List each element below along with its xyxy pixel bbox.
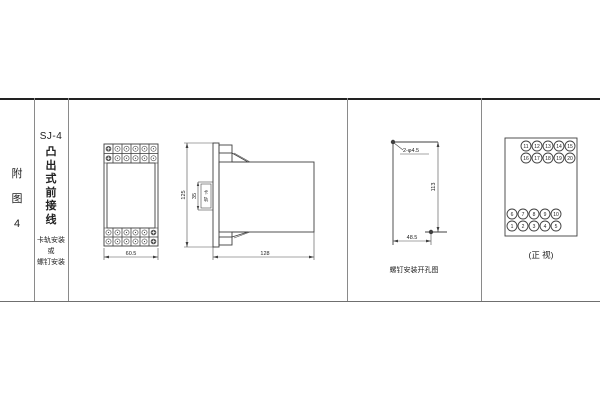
terminal-layout-drawing: 1112131415161718192067891012345 (正 视) [481,125,600,270]
model-label: SJ-4 [40,131,63,142]
side-view-drawing: 125 35 卡 轨 128 [180,130,320,270]
relay-body [107,163,155,228]
rail-label: 轨 [204,196,209,203]
din-rail-clip [201,184,211,208]
drill-diagram-caption: 螺钉安装开孔图 [390,265,439,274]
top-wedge [232,153,248,162]
bottom-drill-hole [429,230,433,234]
terminal-view-caption: (正 视) [528,250,553,260]
figure-sheet: 附 图 4 SJ-4 凸 出 式 前 接 线 卡轨安装 或 螺钉安装 6 [0,0,600,400]
figure-index-char: 图 [12,187,23,212]
terminal-number: 10 [553,212,559,218]
rail-dimension: 35 [192,193,198,199]
terminal-number: 3 [533,224,536,230]
terminal-number: 15 [567,144,573,150]
terminal-number: 2 [522,224,525,230]
table-border-top [0,98,600,100]
bottom-wedge [232,232,248,237]
drill-diagram: 2-φ4.5 113 48.5 螺钉安装开孔图 [347,130,481,290]
terminal-screw-grid [104,144,158,246]
mounting-flange [213,143,219,247]
type-label: 凸 出 式 前 接 线 [46,146,57,227]
hole-horizontal-dimension: 48.5 [407,235,418,241]
hole-vertical-dimension: 113 [431,183,437,192]
terminal-number: 20 [567,156,573,162]
terminal-number: 5 [555,224,558,230]
bottom-terminal-cover [219,237,232,245]
figure-index-char: 附 [12,162,23,187]
top-terminal-cover [219,145,232,153]
terminal-number: 1 [511,224,514,230]
terminal-number: 18 [545,156,551,162]
hole-size-label: 2-φ4.5 [403,148,419,154]
terminal-number: 9 [544,212,547,218]
terminal-number: 14 [556,144,562,150]
depth-dimension: 128 [260,251,269,257]
terminal-number: 4 [544,224,547,230]
figure-index-char: 4 [14,212,20,237]
terminal-number: 6 [511,212,514,218]
terminal-number: 17 [534,156,540,162]
relay-body-side [219,162,314,232]
height-dimension: 125 [181,190,187,199]
terminal-number: 7 [522,212,525,218]
rail-label: 卡 [204,189,209,196]
terminal-number: 8 [533,212,536,218]
terminal-number: 16 [523,156,529,162]
width-dimension: 60.5 [126,251,137,257]
figure-index-cell: 附 图 4 [0,98,34,301]
terminal-numbers: 1112131415161718192067891012345 [507,141,575,231]
figure-index-label: 附 图 4 [12,162,23,237]
table-divider-2 [68,98,69,301]
terminal-number: 12 [534,144,540,150]
figure-title-cell: SJ-4 凸 出 式 前 接 线 卡轨安装 或 螺钉安装 [34,98,68,301]
mount-type-label: 卡轨安装 或 螺钉安装 [37,235,65,268]
table-border-bottom [0,301,600,302]
front-view-drawing: 60.5 [80,130,180,275]
terminal-number: 19 [556,156,562,162]
terminal-panel-outline [505,138,577,236]
terminal-number: 11 [523,144,528,150]
terminal-number: 13 [545,144,551,150]
